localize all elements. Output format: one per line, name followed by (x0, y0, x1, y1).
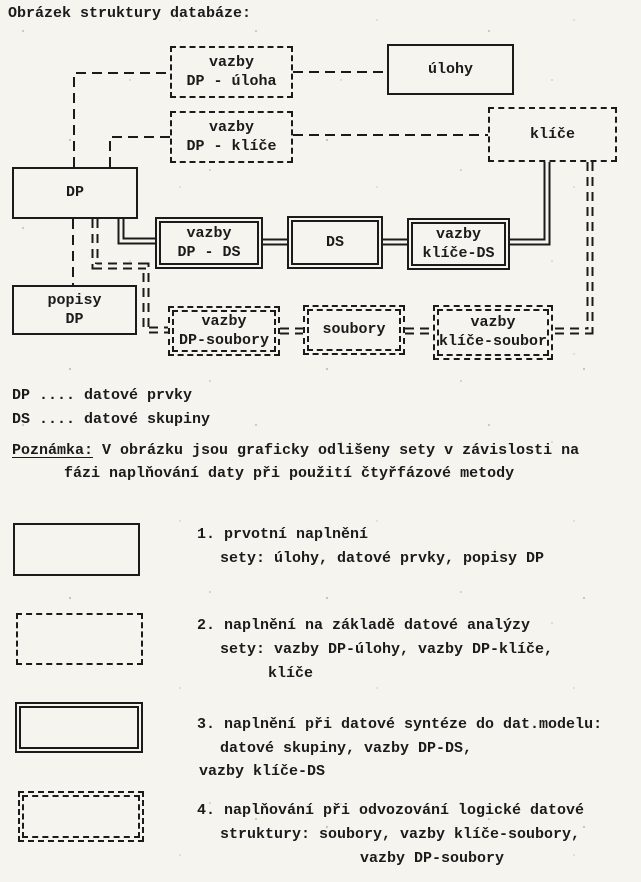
node-label: soubory (322, 321, 385, 339)
edge-dp-vazbydpds (121, 219, 155, 241)
legend-swatch-phase-3 (15, 702, 143, 753)
node-popisy-dp: popisy DP (12, 285, 137, 335)
legend-item-1-line-2: sety: úlohy, datové prvky, popisy DP (220, 550, 544, 568)
edge-vazbykliceds-klice (510, 162, 547, 242)
node-label: vazby (436, 226, 481, 244)
node-label: DP (65, 311, 83, 329)
node-label: DP - klíče (186, 138, 276, 156)
node-dp: DP (12, 167, 138, 219)
legend-item-4-line-3: vazby DP-soubory (360, 850, 504, 868)
node-vazby-dp-uloha: vazby DP - úloha (170, 46, 293, 98)
node-ds: DS (287, 216, 383, 269)
node-vazby-klice-soubor: vazby klíče-soubor (433, 305, 553, 360)
node-label: vazby (209, 119, 254, 137)
note-line-1: Poznámka:V obrázku jsou graficky odlišen… (12, 442, 579, 460)
node-label: DP-soubory (179, 332, 269, 350)
node-label: popisy (47, 292, 101, 310)
node-label: DP (66, 184, 84, 202)
legend-swatch-phase-1 (13, 523, 140, 576)
edge-klice-vazbyklicesoubor (553, 162, 590, 331)
node-vazby-dp-klice: vazby DP - klíče (170, 111, 293, 163)
node-vazby-dp-soubory: vazby DP-soubory (168, 306, 280, 356)
abbreviation-ds: DS .... datové skupiny (12, 411, 210, 429)
note-label: Poznámka: (12, 442, 93, 459)
legend-item-1-line-1: 1. prvotní naplnění (197, 526, 368, 544)
node-vazby-klice-ds: vazby klíče-DS (407, 218, 510, 270)
node-label: klíče-DS (422, 245, 494, 263)
edge-klice-vazbyklicesoubor-inner (553, 162, 590, 331)
scanned-page: Obrázek struktury databáze: vazby DP - ú… (0, 0, 641, 882)
node-label: DS (326, 234, 344, 252)
node-label: klíče-soubor (439, 333, 547, 351)
node-vazby-dp-ds: vazby DP - DS (155, 217, 263, 269)
legend-item-3-line-1: 3. naplnění při datové syntéze do dat.mo… (197, 716, 602, 734)
node-label: vazby (209, 54, 254, 72)
edge-dp-vazbydpuloha (74, 73, 170, 167)
legend-item-3-line-3: vazby klíče-DS (199, 763, 325, 781)
edge-vazbykliceds-klice-inner (510, 162, 547, 242)
node-klice: klíče (488, 107, 617, 162)
legend-item-4-line-1: 4. naplňování při odvozování logické dat… (197, 802, 584, 820)
node-label: úlohy (428, 61, 473, 79)
legend-item-4-line-2: struktury: soubory, vazby klíče-soubory, (220, 826, 580, 844)
node-label: vazby (201, 313, 246, 331)
legend-swatch-phase-4 (18, 791, 144, 842)
node-label: vazby (470, 314, 515, 332)
node-soubory: soubory (303, 305, 405, 355)
note-line-1-text: V obrázku jsou graficky odlišeny sety v … (93, 442, 579, 459)
note-line-2: fázi naplňování daty při použití čtyřfáz… (64, 465, 514, 483)
node-label: DP - DS (177, 244, 240, 262)
legend-item-2-line-3: klíče (268, 665, 313, 683)
node-label: klíče (530, 126, 575, 144)
legend-item-2-line-2: sety: vazby DP-úlohy, vazby DP-klíče, (220, 641, 553, 659)
edge-dp-vazbydpklice (110, 137, 170, 167)
node-ulohy: úlohy (387, 44, 514, 95)
legend-swatch-phase-2 (16, 613, 143, 665)
node-label: vazby (186, 225, 231, 243)
node-label: DP - úloha (186, 73, 276, 91)
legend-item-2-line-1: 2. naplnění na základě datové analýzy (197, 617, 530, 635)
legend-item-3-line-2: datové skupiny, vazby DP-DS, (220, 740, 472, 758)
abbreviation-dp: DP .... datové prvky (12, 387, 192, 405)
